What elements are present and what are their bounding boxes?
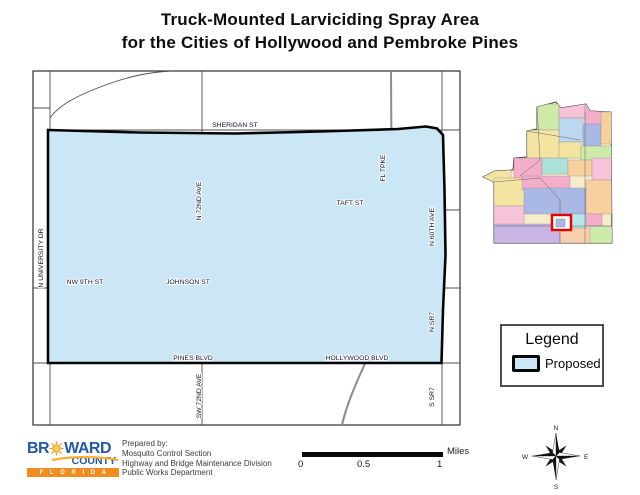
proposed-swatch: [512, 355, 540, 372]
page-title: Truck-Mounted Larviciding Spray Area for…: [0, 8, 640, 54]
credit-line-3: Public Works Department: [122, 468, 272, 478]
compass-e-label: E: [584, 454, 589, 461]
compass-s-label: S: [554, 484, 559, 491]
logo-text-br: BR: [27, 441, 49, 456]
street-label-sheridan-st: SHERIDAN ST: [212, 122, 258, 129]
legend-item-proposed: Proposed: [512, 355, 602, 372]
street-label-n-university-dr: N UNIVERSITY DR: [38, 228, 45, 287]
street-label-n-sr7: N SR7: [429, 312, 436, 332]
broward-county-logo: BR WARD COUNTY F L O R I D A: [27, 441, 119, 477]
logo-florida-strip: F L O R I D A: [27, 468, 119, 477]
street-label-sw-72nd-ave: SW 72ND AVE: [196, 373, 203, 418]
page-title-line1: Truck-Mounted Larviciding Spray Area: [0, 8, 640, 31]
scale-bar: [302, 452, 443, 457]
page-title-line2: for the Cities of Hollywood and Pembroke…: [0, 31, 640, 54]
scale-tick-0-5: 0.5: [357, 459, 370, 470]
street-label-s-sr7: S SR7: [429, 387, 436, 407]
scale-tick-1: 1: [437, 459, 442, 470]
credit-line-1: Mosquito Control Section: [122, 449, 272, 459]
compass-w-label: W: [522, 454, 529, 461]
legend-title: Legend: [502, 331, 602, 349]
prepared-by-label: Prepared by:: [122, 439, 272, 449]
street-label-n-72nd-ave: N 72ND AVE: [196, 181, 203, 220]
prepared-by-block: Prepared by: Mosquito Control Section Hi…: [122, 439, 272, 478]
main-map: SHERIDAN ST TAFT ST NW 9TH ST JOHNSON ST…: [33, 71, 460, 425]
compass-rose-icon: N S W E: [520, 420, 592, 494]
scale-bar-unit: Miles: [447, 446, 469, 457]
logo-swoosh: [51, 454, 119, 462]
street-label-hollywood-blvd: HOLLYWOOD BLVD: [326, 355, 389, 362]
inset-highlight-area: [556, 219, 565, 227]
street-label-pines-blvd: PINES BLVD: [173, 355, 213, 362]
street-label-nw-9th-st: NW 9TH ST: [67, 279, 104, 286]
proposed-label: Proposed: [545, 356, 601, 371]
street-label-n-60th-ave: N 60TH AVE: [429, 208, 436, 246]
street-label-johnson-st: JOHNSON ST: [166, 279, 210, 286]
legend: Legend Proposed: [500, 324, 604, 387]
street-label-taft-st: TAFT ST: [337, 200, 364, 207]
map-document: Truck-Mounted Larviciding Spray Area for…: [0, 0, 640, 495]
scale-tick-0: 0: [298, 459, 303, 470]
credit-line-2: Highway and Bridge Maintenance Division: [122, 459, 272, 469]
compass-n-label: N: [554, 425, 559, 432]
street-label-fl-tpke: FL TPKE: [380, 154, 387, 182]
county-inset-map: [477, 84, 617, 252]
